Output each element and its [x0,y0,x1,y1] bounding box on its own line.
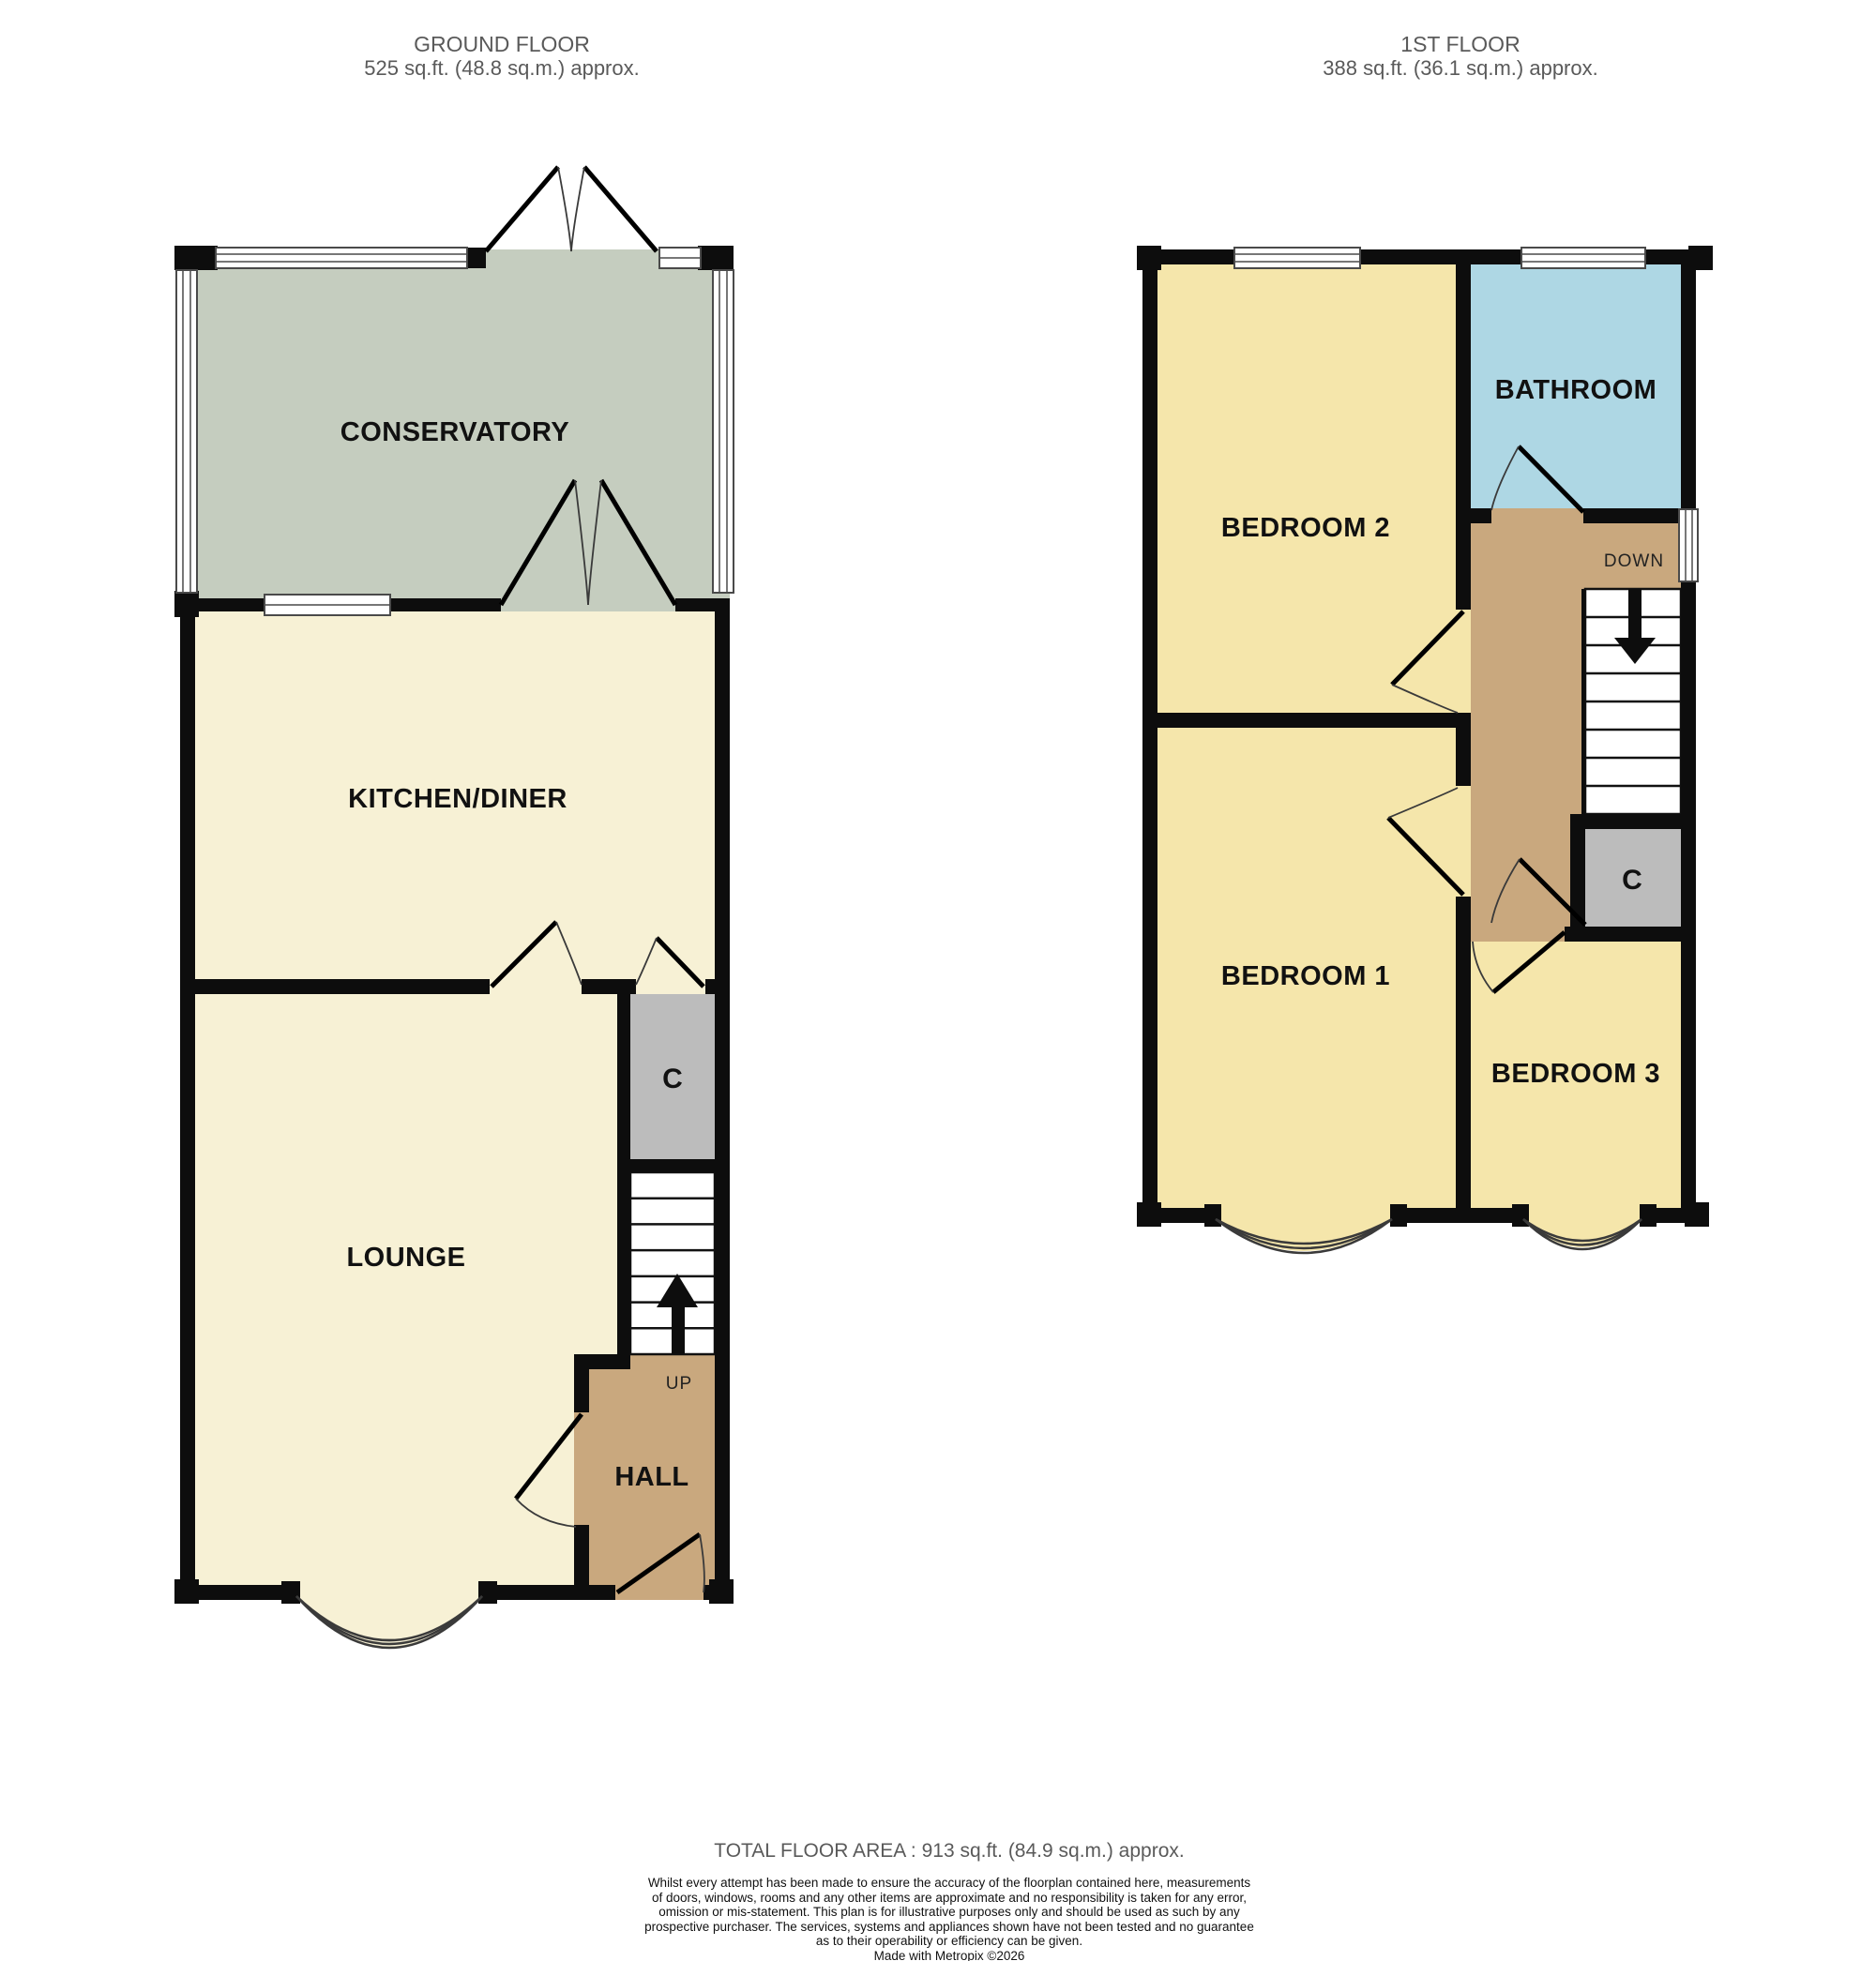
down-arrow-shaft [1628,589,1641,638]
footer: TOTAL FLOOR AREA : 913 sq.ft. (84.9 sq.m… [11,1840,1876,1961]
conservatory-label: CONSERVATORY [340,417,570,447]
bedroom2-window [1234,248,1360,268]
disclaimer-line: prospective purchaser. The services, sys… [11,1920,1876,1935]
disclaimer-line: as to their operability or efficiency ca… [11,1934,1876,1949]
floorplan-drawing: CONSERVATORY KITCHEN/DINER LOUNGE C UP H… [0,0,1876,1961]
first-stairs [1585,589,1681,814]
lounge-bay-floor [296,1585,482,1648]
first-floor-plan: BEDROOM 2 BATHROOM DOWN BEDROOM 1 C BEDR… [1137,246,1713,1253]
landing-side-window [1679,509,1698,581]
kitchen-diner-label: KITCHEN/DINER [348,784,567,814]
bathroom-label: BATHROOM [1495,375,1657,405]
hall-label: HALL [614,1462,688,1492]
stairs-down-label: DOWN [1604,551,1664,571]
landing-corridor-area [1471,589,1570,942]
metropix-credit: Made with Metropix ©2026 [11,1949,1876,1961]
first-cupboard-label: C [1622,865,1642,896]
stairs-up-label: UP [666,1374,692,1394]
conservatory-top-window-left [216,248,467,268]
up-arrow-shaft [672,1305,685,1354]
conservatory-garden-french-doors [486,167,657,251]
disclaimer-line: Whilst every attempt has been made to en… [11,1876,1876,1891]
conservatory-right-window [713,270,734,593]
conservatory-left-window [176,270,197,593]
bedroom1-label: BEDROOM 1 [1221,961,1390,991]
kitchen-top-window [265,595,390,615]
bathroom-window [1521,248,1645,268]
floorplan-page: GROUND FLOOR 525 sq.ft. (48.8 sq.m.) app… [0,0,1876,1961]
ground-floor-plan: CONSERVATORY KITCHEN/DINER LOUNGE C UP H… [174,167,734,1648]
ground-cupboard-label: C [662,1063,683,1094]
bedroom2-label: BEDROOM 2 [1221,513,1390,543]
conservatory-top-window-right [659,248,701,268]
total-floor-area: TOTAL FLOOR AREA : 913 sq.ft. (84.9 sq.m… [11,1840,1876,1863]
ground-stairs [630,1172,715,1354]
bedroom3-label: BEDROOM 3 [1491,1059,1660,1089]
lounge-label: LOUNGE [346,1243,465,1273]
disclaimer-line: omission or mis-statement. This plan is … [11,1905,1876,1920]
disclaimer-line: of doors, windows, rooms and any other i… [11,1891,1876,1906]
